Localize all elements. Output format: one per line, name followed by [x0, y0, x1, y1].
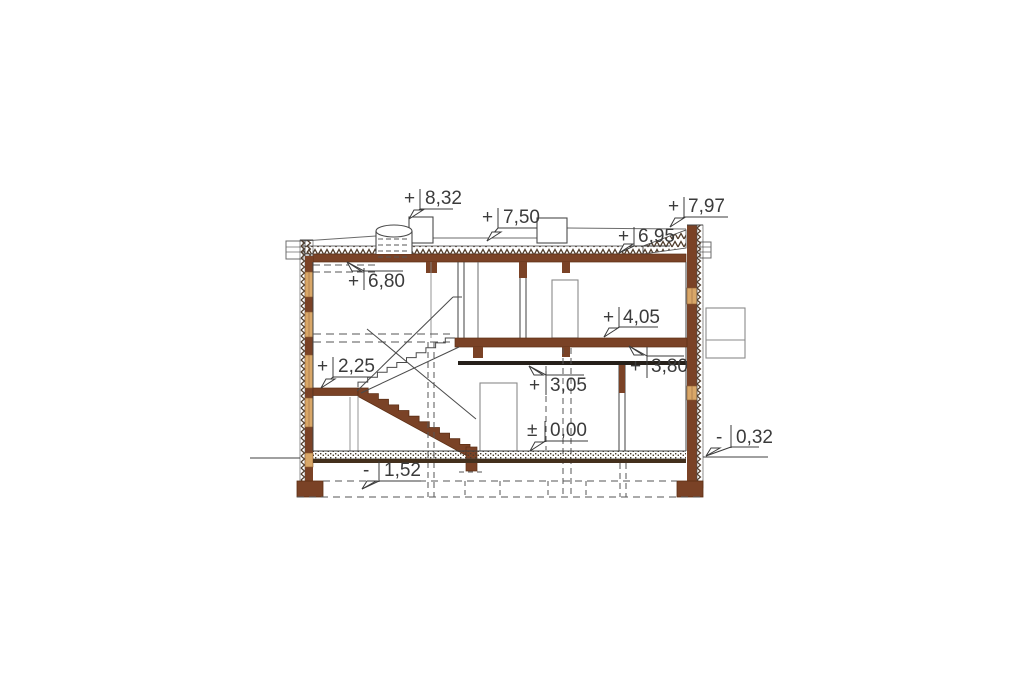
- marker-value: 1,52: [384, 461, 421, 480]
- marker-value: 8,32: [425, 189, 462, 208]
- marker-sign: -: [716, 428, 722, 447]
- marker-value: 6,80: [368, 272, 405, 291]
- marker-value: 0,00: [550, 421, 587, 440]
- marker-sign: +: [482, 208, 493, 227]
- marker-value: 4,05: [623, 308, 660, 327]
- attic-floor-slab: [455, 338, 687, 347]
- marker-value: 2,25: [338, 357, 375, 376]
- attic-door: [552, 280, 578, 338]
- section-drawing-page: + 8,32 + 7,50 + 7,97 + 6,95 + 6,80 + 4,0…: [0, 0, 1024, 682]
- chimney-stack: [409, 217, 433, 243]
- marker-value: 7,50: [503, 208, 540, 227]
- marker-value: 6,95: [638, 227, 675, 246]
- marker-sign: +: [529, 376, 540, 395]
- marker-sign: +: [317, 357, 328, 376]
- stair-flight-cut: [358, 388, 475, 460]
- building-section-svg: [0, 0, 1024, 682]
- marker-value: 0,32: [736, 428, 773, 447]
- marker-sign: +: [348, 272, 359, 291]
- marker-sign: -: [363, 461, 369, 480]
- marker-sign: +: [404, 189, 415, 208]
- left-wall: [300, 240, 313, 488]
- marker-sign: +: [618, 227, 629, 246]
- right-wall: [686, 225, 703, 488]
- ceiling-slab: [313, 254, 686, 262]
- marker-sign: +: [668, 197, 679, 216]
- stair-landing: [313, 388, 358, 396]
- ground-floor-door: [480, 383, 517, 451]
- marker-sign: ±: [527, 421, 537, 440]
- marker-sign: +: [603, 308, 614, 327]
- marker-value: 7,97: [688, 197, 725, 216]
- marker-value: 3,80: [651, 357, 688, 376]
- right-exterior-box: [706, 308, 745, 358]
- stairs: [313, 297, 477, 471]
- skylight-curb: [537, 218, 567, 243]
- marker-value: 3,05: [550, 376, 587, 395]
- marker-sign: +: [630, 357, 641, 376]
- foundation: [297, 472, 703, 497]
- vent-cylinder: [376, 225, 412, 257]
